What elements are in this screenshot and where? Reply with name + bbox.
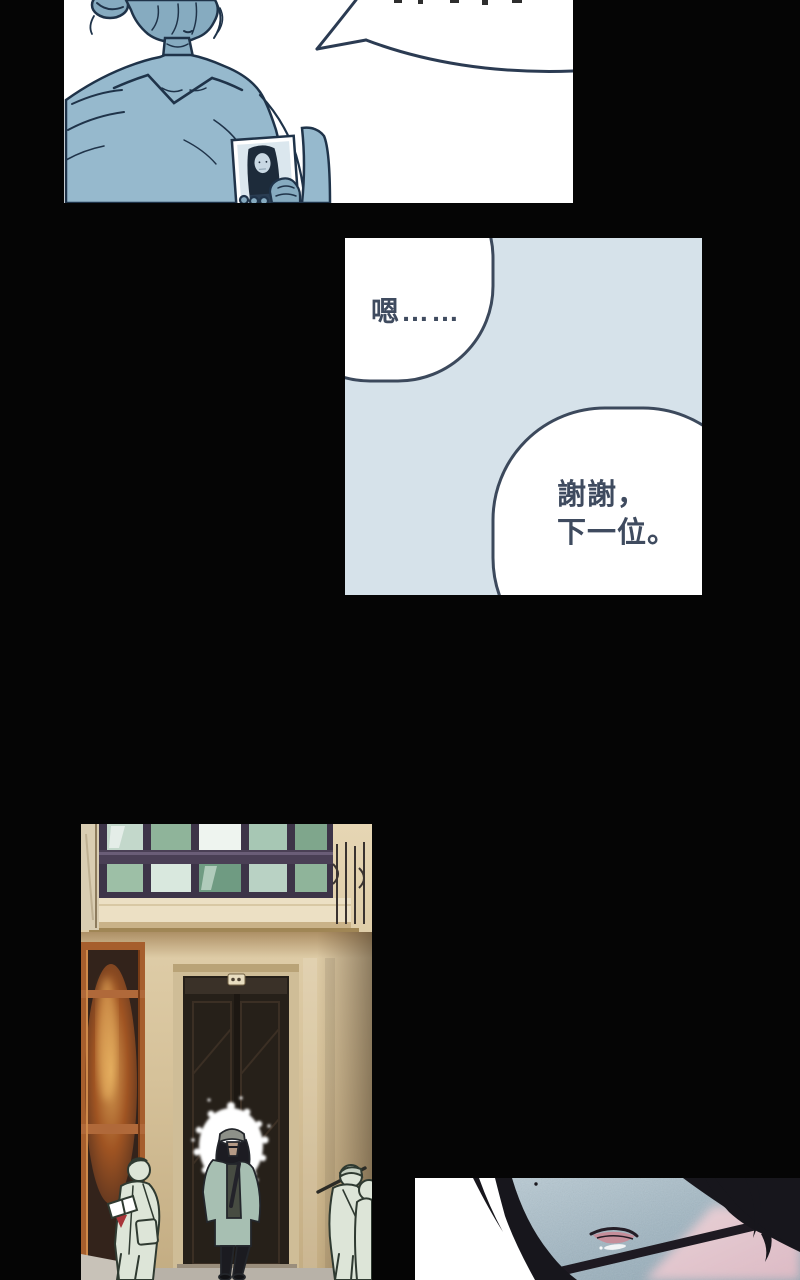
balcony-ledge: [89, 898, 359, 932]
speech-bubble-top: [317, 0, 573, 71]
panel-street-scene: [81, 824, 372, 1280]
speech-bubble-2-line2: 下一位。: [557, 514, 677, 552]
left-shutter: [81, 824, 99, 930]
woman-holding-photo-art: [64, 0, 573, 203]
face: [227, 1142, 239, 1156]
face-closeup-art: [415, 1178, 800, 1280]
speech-bubble-2-line1: 謝謝，: [557, 476, 677, 514]
cutoff-text-fragments: [394, 0, 522, 5]
panel-dialogue: 嗯…… 謝謝， 下一位。: [345, 238, 702, 595]
shoe-right: [233, 1274, 245, 1280]
house-number-plate: [228, 974, 245, 985]
speech-bubble-1-text: 嗯……: [371, 290, 461, 330]
bay-window: [99, 824, 333, 898]
street-scene-art: [81, 824, 372, 1280]
wall-streak: [303, 958, 317, 1280]
sleeve: [302, 128, 330, 203]
panel-face-closeup: [415, 1178, 800, 1280]
comic-page: 嗯…… 謝謝， 下一位。: [0, 0, 800, 1280]
shoulder-bag: [136, 1219, 158, 1245]
speech-bubble-2-text: 謝謝， 下一位。: [557, 476, 677, 552]
shoe-left: [219, 1274, 231, 1280]
beauty-mark: [534, 1182, 537, 1185]
panel-woman-holding-photo: [64, 0, 573, 203]
head: [126, 0, 218, 42]
